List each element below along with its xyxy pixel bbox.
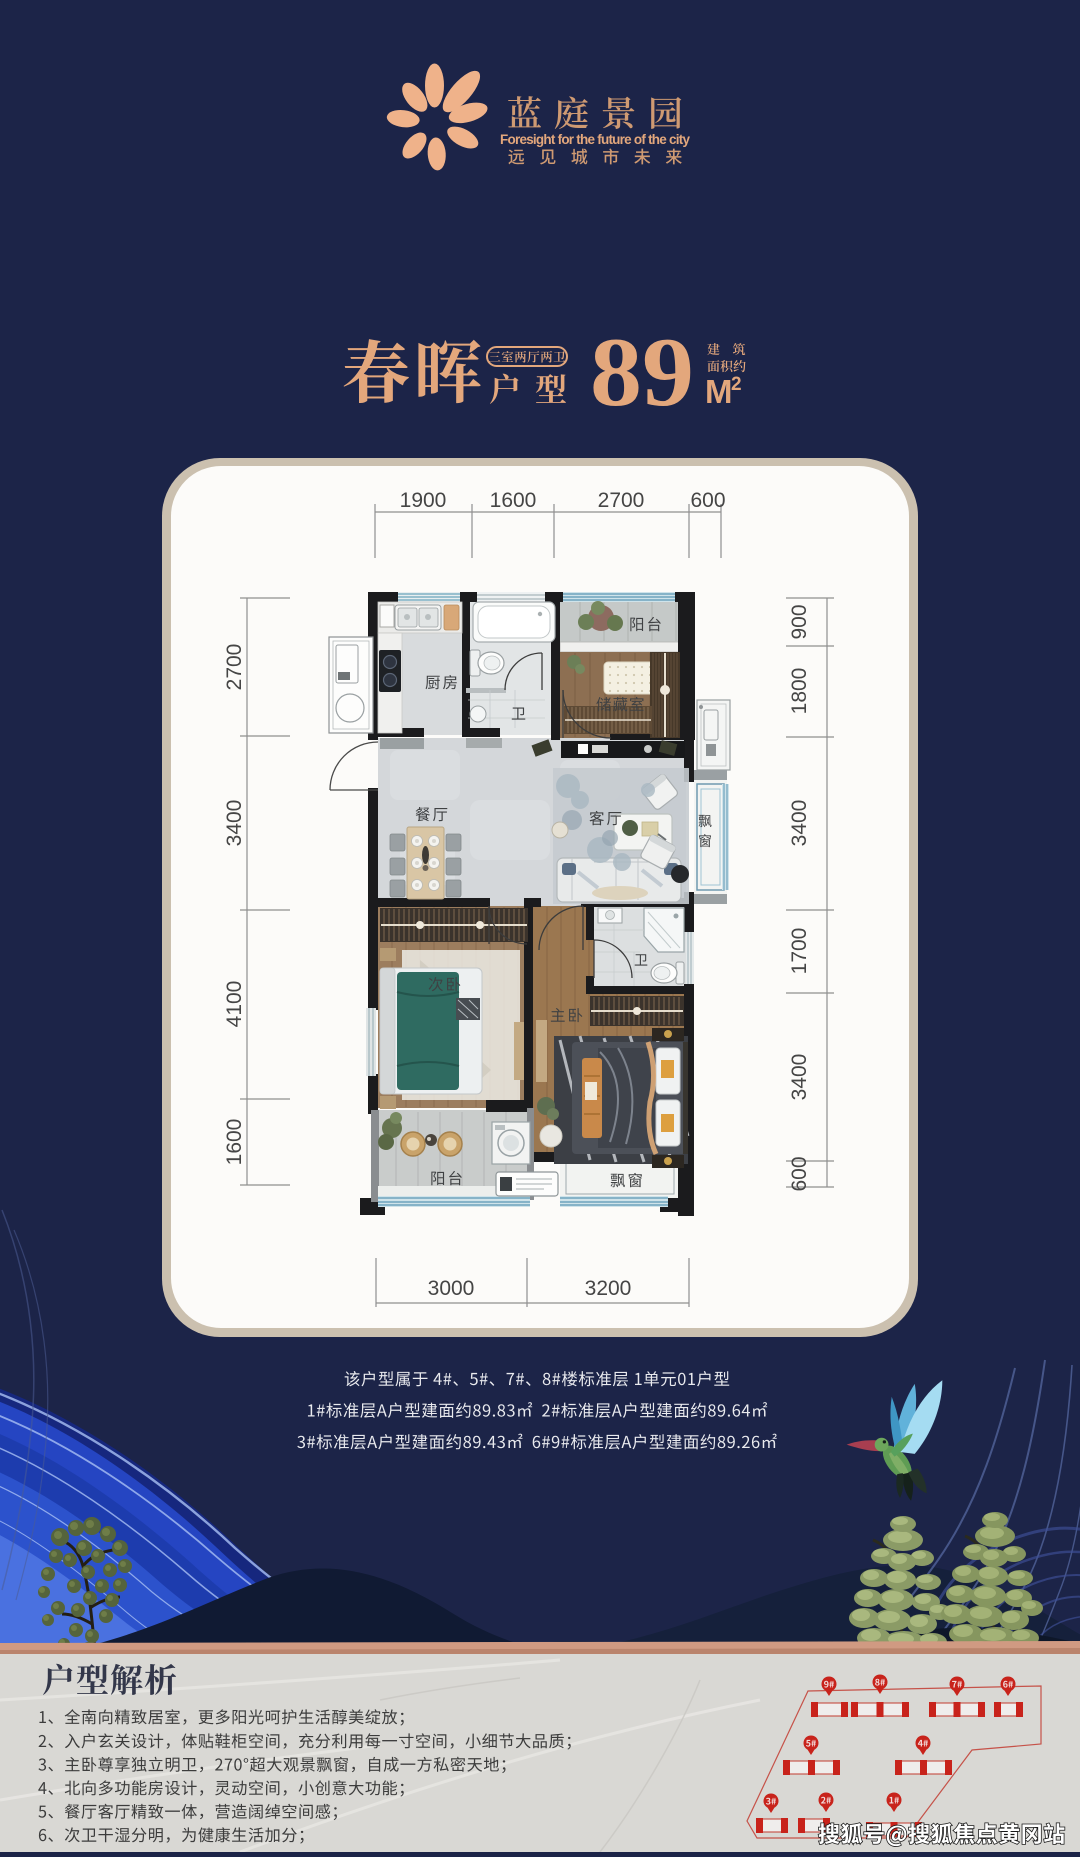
svg-text:89: 89 <box>590 318 694 427</box>
svg-text:3400: 3400 <box>788 1054 811 1101</box>
svg-text:1600: 1600 <box>490 489 537 512</box>
svg-text:3200: 3200 <box>585 1277 632 1300</box>
svg-text:2700: 2700 <box>223 644 246 691</box>
svg-text:1900: 1900 <box>400 489 447 512</box>
svg-text:3400: 3400 <box>223 800 246 847</box>
svg-text:900: 900 <box>788 604 811 639</box>
svg-text:2: 2 <box>731 374 742 395</box>
svg-text:Foresight for the future of th: Foresight for the future of the city <box>500 132 690 147</box>
svg-text:1800: 1800 <box>788 668 811 715</box>
svg-text:600: 600 <box>690 489 725 512</box>
svg-text:2700: 2700 <box>598 489 645 512</box>
svg-text:1700: 1700 <box>788 928 811 975</box>
svg-text:4100: 4100 <box>223 981 246 1028</box>
svg-text:1600: 1600 <box>223 1119 246 1166</box>
svg-text:3000: 3000 <box>428 1277 475 1300</box>
svg-text:M: M <box>705 373 733 410</box>
svg-text:600: 600 <box>788 1156 811 1191</box>
svg-text:3400: 3400 <box>788 800 811 847</box>
